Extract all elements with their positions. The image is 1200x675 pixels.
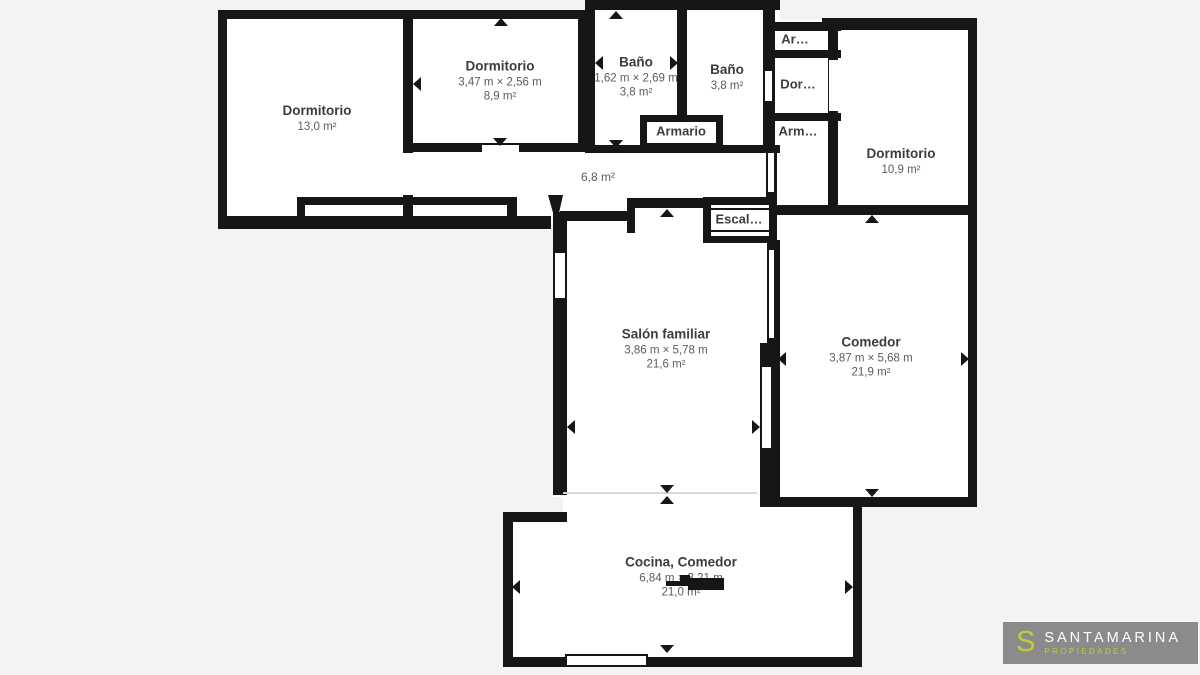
- room-label-dormitorio-89: Dormitorio 3,47 m × 2,56 m 8,9 m²: [458, 57, 541, 104]
- room-name: Baño: [594, 53, 677, 71]
- wall: [968, 18, 977, 507]
- wall: [760, 497, 977, 507]
- door-opening: [403, 153, 413, 195]
- floor-top-right-block: [822, 18, 977, 215]
- arrow-down-icon: [660, 485, 674, 493]
- room-name: Salón familiar: [622, 325, 711, 343]
- arrow-left-icon: [512, 580, 520, 594]
- stair-tread-line: [711, 208, 769, 210]
- room-area: 8,9 m²: [458, 90, 541, 105]
- room-area: 6,8 m²: [581, 170, 615, 184]
- room-label-armario-top: Ar…: [781, 32, 808, 49]
- wall: [828, 22, 838, 215]
- room-name: Dormitorio: [867, 145, 936, 163]
- stair-tread-line: [711, 230, 769, 232]
- arrow-up-icon: [865, 215, 879, 223]
- wall: [853, 505, 862, 667]
- room-label-armario: Armario: [656, 124, 706, 141]
- logo-tagline-text: PROPIEDADES: [1044, 647, 1181, 657]
- wall: [503, 657, 862, 667]
- arrow-down-icon: [865, 489, 879, 497]
- arrow-left-icon: [567, 420, 575, 434]
- window: [555, 251, 565, 300]
- logo-brand-text: SANTAMARINA: [1044, 630, 1181, 647]
- arrow-up-icon: [609, 11, 623, 19]
- arrow-right-icon: [579, 77, 587, 91]
- wall: [560, 211, 630, 221]
- room-label-dormitorio-13: Dormitorio 13,0 m²: [283, 102, 352, 134]
- door-opening: [768, 153, 774, 192]
- room-label-dormitorio-109: Dormitorio 10,9 m²: [867, 145, 936, 177]
- room-name: Dormitorio: [458, 57, 541, 75]
- arrow-up-icon: [494, 18, 508, 26]
- logo-text-block: SANTAMARINA PROPIEDADES: [1044, 630, 1181, 656]
- room-name: Dor…: [780, 77, 815, 94]
- wall: [585, 0, 780, 10]
- room-name: Escal…: [716, 212, 763, 229]
- wall-wardrobe: [297, 197, 517, 205]
- room-label-dormitorio-small: Dor…: [780, 77, 815, 94]
- room-name: Arm…: [778, 124, 817, 141]
- room-area: 3,8 m²: [594, 86, 677, 101]
- wall: [218, 10, 592, 19]
- room-label-comedor: Comedor 3,87 m × 5,68 m 21,9 m²: [829, 333, 912, 380]
- wall: [503, 512, 567, 522]
- door-opening: [765, 71, 772, 101]
- wall-wardrobe: [507, 197, 517, 216]
- room-dims: 3,47 m × 2,56 m: [458, 75, 541, 90]
- wall: [627, 198, 712, 208]
- floor-plan-canvas: Dormitorio 13,0 m² Dormitorio 3,47 m × 2…: [0, 0, 1200, 675]
- room-area: 3,8 m²: [710, 78, 744, 93]
- arrow-left-icon: [778, 352, 786, 366]
- room-area: 21,9 m²: [829, 366, 912, 381]
- room-name: Ar…: [781, 32, 808, 49]
- door-opening: [829, 60, 838, 111]
- wall: [822, 18, 977, 30]
- room-name: Baño: [710, 61, 744, 79]
- wall: [218, 10, 227, 229]
- wall: [627, 208, 635, 233]
- room-dims: 3,86 m × 5,78 m: [622, 343, 711, 358]
- arrow-down-icon: [493, 138, 507, 146]
- arrow-down-icon: [660, 645, 674, 653]
- wall: [677, 10, 687, 122]
- door-opening: [769, 250, 774, 338]
- arrow-right-icon: [845, 580, 853, 594]
- arrow-up-icon: [660, 209, 674, 217]
- room-name: Armario: [656, 124, 706, 141]
- counter-icon: [688, 578, 724, 590]
- arrow-left-icon: [413, 77, 421, 91]
- arrow-right-icon: [752, 420, 760, 434]
- agency-logo: S SANTAMARINA PROPIEDADES: [1003, 622, 1198, 664]
- room-label-armario-bottom: Arm…: [778, 124, 817, 141]
- window: [565, 654, 648, 667]
- wall: [218, 216, 551, 229]
- room-label-bano-1: Baño 1,62 m × 2,69 m 3,8 m²: [594, 53, 677, 100]
- logo-monogram: S: [1016, 628, 1035, 657]
- arrow-right-icon: [961, 352, 969, 366]
- arrow-down-icon: [609, 140, 623, 148]
- room-label-pasillo: 6,8 m²: [581, 170, 615, 184]
- door-opening: [762, 367, 771, 448]
- room-area: 13,0 m²: [283, 119, 352, 134]
- room-label-bano-2: Baño 3,8 m²: [710, 61, 744, 93]
- room-area: 21,6 m²: [622, 358, 711, 373]
- room-name: Cocina, Comedor: [625, 553, 737, 571]
- arrow-up-icon: [660, 496, 674, 504]
- door-opening: [482, 145, 519, 152]
- room-label-escalera: Escal…: [716, 212, 763, 229]
- wall-wardrobe: [297, 197, 305, 216]
- room-name: Dormitorio: [283, 102, 352, 120]
- wall: [763, 205, 977, 215]
- room-name: Comedor: [829, 333, 912, 351]
- room-dims: 3,87 m × 5,68 m: [829, 351, 912, 366]
- room-area: 10,9 m²: [867, 162, 936, 177]
- room-label-salon: Salón familiar 3,86 m × 5,78 m 21,6 m²: [622, 325, 711, 372]
- room-dims: 1,62 m × 2,69 m: [594, 71, 677, 86]
